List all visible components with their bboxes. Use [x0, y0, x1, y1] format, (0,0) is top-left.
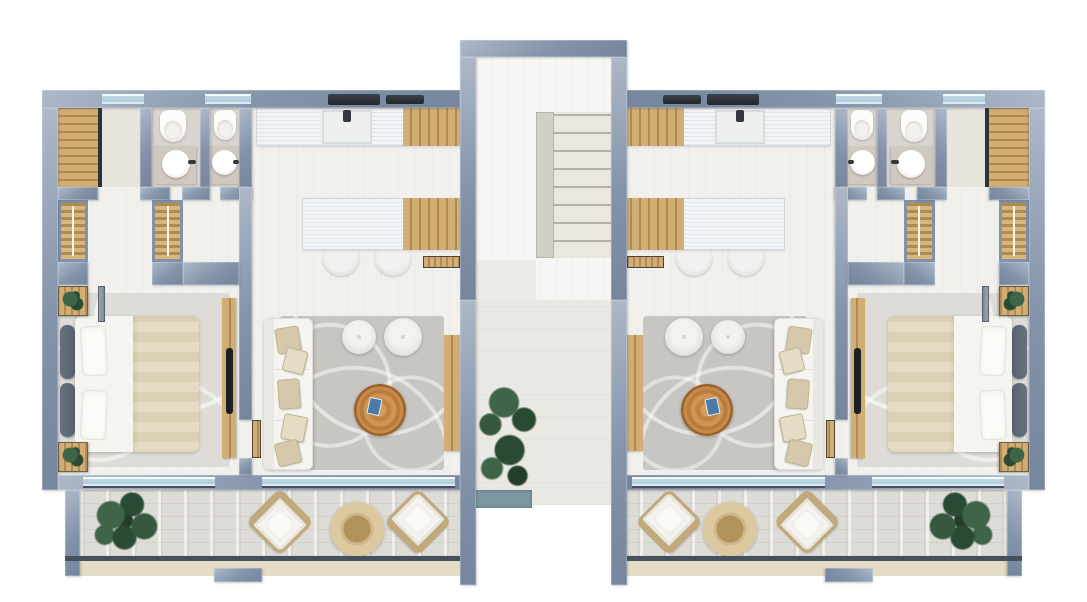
bed-pillow [80, 389, 109, 440]
bathroom-divider-wall [877, 108, 887, 187]
sofa-back [264, 319, 274, 469]
headboard-cushion [1012, 325, 1027, 379]
bedroom-top-wall [848, 262, 904, 285]
wardrobe-stub-wall [58, 262, 88, 285]
closet-right-wall [140, 108, 152, 187]
window-glass [836, 94, 882, 104]
sideboard [444, 335, 460, 451]
balcony-support-block [214, 568, 262, 582]
bedroom-door-leaf [252, 420, 261, 458]
balcony-support-block [825, 568, 873, 582]
potted-plant-small [61, 445, 85, 469]
closet-glass-partition [985, 108, 989, 187]
closet-vestibule-floor [102, 108, 140, 187]
closet-glass-partition [98, 108, 102, 187]
pouf [342, 320, 376, 354]
wardrobe-stub-wall [904, 262, 935, 285]
kitchen-counter-wood [627, 108, 684, 146]
toilet-bowl [905, 121, 923, 140]
wardrobe [999, 200, 1029, 262]
wardrobe [904, 200, 935, 262]
potted-plant-small [1002, 445, 1026, 469]
tv-screen [854, 348, 861, 414]
floor-plan-scene [0, 0, 1087, 602]
kitchen-faucet [343, 110, 351, 122]
bathroom-divider-wall [200, 108, 210, 187]
bedroom-living-wall-lower [239, 458, 252, 475]
bathroom-right-wall [835, 108, 848, 187]
sofa [263, 318, 313, 470]
balcony-side-wall [65, 490, 80, 576]
balcony-side-wall [1007, 490, 1022, 576]
balcony-slab-edge [65, 561, 460, 576]
cooktop [707, 94, 759, 105]
bed-pillow [979, 389, 1008, 440]
bedroom-living-wall-lower [835, 458, 848, 475]
balcony-plant [88, 490, 164, 556]
wardrobe-rail [167, 206, 169, 256]
kitchen-island-wood [627, 198, 684, 250]
potted-plant-small [61, 289, 85, 313]
kitchen-door-leaf [423, 256, 460, 268]
wardrobe-rail [1013, 206, 1015, 256]
wardrobe [58, 200, 88, 262]
balcony-plant [923, 490, 999, 556]
round-basin [162, 150, 190, 178]
toilet [160, 110, 186, 142]
basin-faucet [188, 160, 196, 164]
bedroom-top-wall [183, 262, 239, 285]
chair-cushion [790, 508, 824, 542]
range-hood [386, 95, 424, 104]
stairwell-right-wall [611, 57, 627, 300]
bed-blanket [133, 316, 199, 452]
bed-pillow [80, 325, 109, 376]
wall-under-bath [140, 187, 170, 200]
double-bed [888, 316, 1012, 452]
balcony-railing [627, 556, 1022, 561]
nightstand [58, 442, 88, 472]
sofa-pillow [274, 439, 303, 468]
stair-treads [554, 112, 611, 258]
basin-faucet [233, 160, 239, 164]
toilet-bowl [854, 120, 869, 138]
corridor-plant [468, 383, 548, 505]
sofa-pillow [277, 378, 301, 409]
living-sliding-door-glass [262, 477, 455, 488]
sofa-back [813, 319, 823, 469]
bedroom-door-leaf [826, 420, 835, 458]
exterior-wall-left [42, 108, 58, 490]
cooktop [328, 94, 380, 105]
range-hood [663, 95, 701, 104]
bedroom-sliding-door-glass [83, 477, 215, 488]
headboard-cushion [60, 325, 75, 379]
living-sliding-door-glass [632, 477, 825, 488]
toilet-bowl [217, 120, 232, 138]
window-glass [205, 94, 251, 104]
toilet [851, 110, 873, 140]
wardrobe-rail [919, 206, 921, 256]
nightstand [999, 442, 1029, 472]
apartment-left-unit [42, 90, 460, 585]
wardrobe-stub-wall [999, 262, 1029, 285]
nightstand [999, 286, 1029, 316]
window-glass [102, 94, 144, 104]
nightstand [58, 286, 88, 316]
exterior-wall-left [1029, 108, 1045, 490]
sideboard [627, 335, 643, 451]
apartment-right-unit [627, 90, 1045, 585]
stair-spine-wall [536, 112, 554, 258]
bedroom-living-wall [239, 187, 252, 420]
closet-vestibule-floor [947, 108, 985, 187]
kitchen-faucet [736, 110, 744, 122]
wall-under-closet [58, 187, 98, 200]
chair-cushion [652, 502, 686, 536]
chair-cushion [401, 502, 435, 536]
toilet [214, 110, 236, 140]
wall-under-bath [917, 187, 947, 200]
tv-screen [226, 348, 233, 414]
headboard-cushion [60, 383, 75, 437]
basin-faucet [891, 160, 899, 164]
round-basin [897, 150, 925, 178]
hallway-door-leaf [982, 286, 989, 322]
outdoor-table [703, 502, 757, 556]
toilet [901, 110, 927, 142]
corridor-right-wall [611, 300, 627, 585]
toilet-bowl [164, 121, 182, 140]
pouf [711, 320, 745, 354]
wall-under-closet [989, 187, 1029, 200]
double-bed [75, 316, 199, 452]
balcony-railing [65, 556, 460, 561]
stairwell-left-wall [460, 57, 476, 300]
hallway-door-leaf [98, 286, 105, 322]
basin-faucet [848, 160, 854, 164]
kitchen-counter-wood [403, 108, 460, 146]
bathroom-right-wall [239, 108, 252, 187]
outdoor-table [330, 502, 384, 556]
sofa-pillow [785, 439, 814, 468]
wall-under-bath [877, 187, 905, 200]
chair-cushion [263, 508, 297, 542]
sofa-pillow [281, 347, 308, 376]
sofa-pillow [786, 378, 810, 409]
wardrobe [152, 200, 183, 262]
closet-right-wall [935, 108, 947, 187]
closet-wood-floor [58, 108, 98, 187]
potted-plant-small [1002, 289, 1026, 313]
pouf [665, 318, 703, 356]
sofa [774, 318, 824, 470]
wall-under-bath [182, 187, 210, 200]
stair-landing [476, 260, 536, 300]
bed-pillow [979, 325, 1008, 376]
headboard-cushion [1012, 383, 1027, 437]
bedroom-sliding-door-glass [872, 477, 1004, 488]
window-glass [943, 94, 985, 104]
wardrobe-rail [72, 206, 74, 256]
stairwell-top-wall [460, 40, 627, 57]
pouf [384, 318, 422, 356]
kitchen-island-wood [403, 198, 460, 250]
wardrobe-stub-wall [152, 262, 183, 285]
bedroom-living-wall [835, 187, 848, 420]
bed-blanket [888, 316, 954, 452]
closet-wood-floor [989, 108, 1029, 187]
kitchen-door-leaf [627, 256, 664, 268]
